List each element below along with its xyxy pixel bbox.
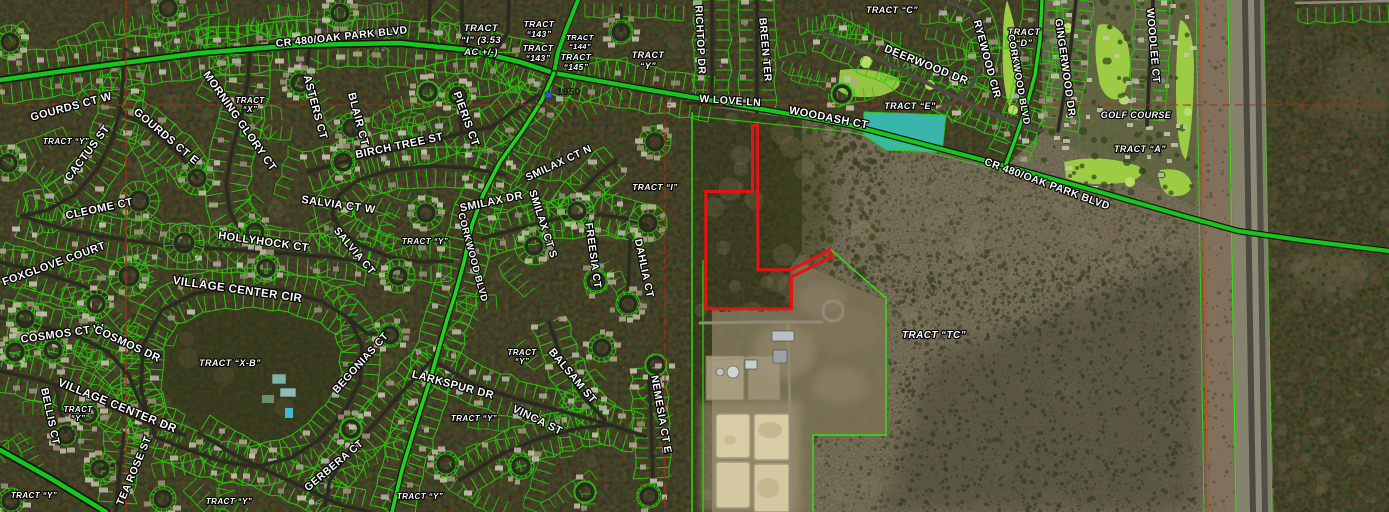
svg-text:TRACT “Y”: TRACT “Y” xyxy=(206,497,252,506)
svg-text:TRACT: TRACT xyxy=(632,50,666,60)
svg-text:“I” (3.53: “I” (3.53 xyxy=(461,35,501,46)
svg-text:TRACT: TRACT xyxy=(561,52,592,62)
svg-text:“Y”: “Y” xyxy=(515,357,530,366)
svg-text:“145”: “145” xyxy=(564,62,589,72)
svg-text:TRACT “Y”: TRACT “Y” xyxy=(43,137,89,146)
svg-text:TRACT “Y”: TRACT “Y” xyxy=(397,492,443,501)
svg-text:AC +/-): AC +/-) xyxy=(463,47,498,58)
svg-text:TRACT: TRACT xyxy=(507,348,537,357)
svg-text:“143”: “143” xyxy=(527,29,552,39)
svg-text:TRACT “A”: TRACT “A” xyxy=(1114,144,1166,154)
svg-text:TRACT “X-B”: TRACT “X-B” xyxy=(199,358,261,368)
svg-text:“Y”: “Y” xyxy=(71,414,86,423)
svg-text:“143”: “143” xyxy=(526,53,551,63)
svg-text:“Y”: “Y” xyxy=(640,61,656,71)
svg-text:TRACT “Y”: TRACT “Y” xyxy=(451,414,497,423)
svg-text:“X”: “X” xyxy=(243,105,258,114)
svg-text:GOLF COURSE: GOLF COURSE xyxy=(1101,110,1172,120)
svg-text:TRACT “E”: TRACT “E” xyxy=(884,101,936,111)
svg-text:TRACT: TRACT xyxy=(523,43,554,53)
svg-text:TRACT: TRACT xyxy=(464,23,499,34)
svg-text:TRACT “TC”: TRACT “TC” xyxy=(902,330,966,341)
svg-text:TRACT “C”: TRACT “C” xyxy=(866,5,918,15)
svg-text:TRACT: TRACT xyxy=(566,33,594,42)
svg-text:TRACT: TRACT xyxy=(524,19,555,29)
svg-text:1950: 1950 xyxy=(557,87,581,98)
svg-text:TRACT “I”: TRACT “I” xyxy=(632,182,678,192)
svg-text:“144”: “144” xyxy=(569,42,591,51)
svg-text:TRACT: TRACT xyxy=(63,405,93,414)
svg-text:TRACT “Y”: TRACT “Y” xyxy=(402,237,448,246)
svg-text:TRACT: TRACT xyxy=(235,96,265,105)
svg-text:TRACT “Y”: TRACT “Y” xyxy=(11,491,57,500)
